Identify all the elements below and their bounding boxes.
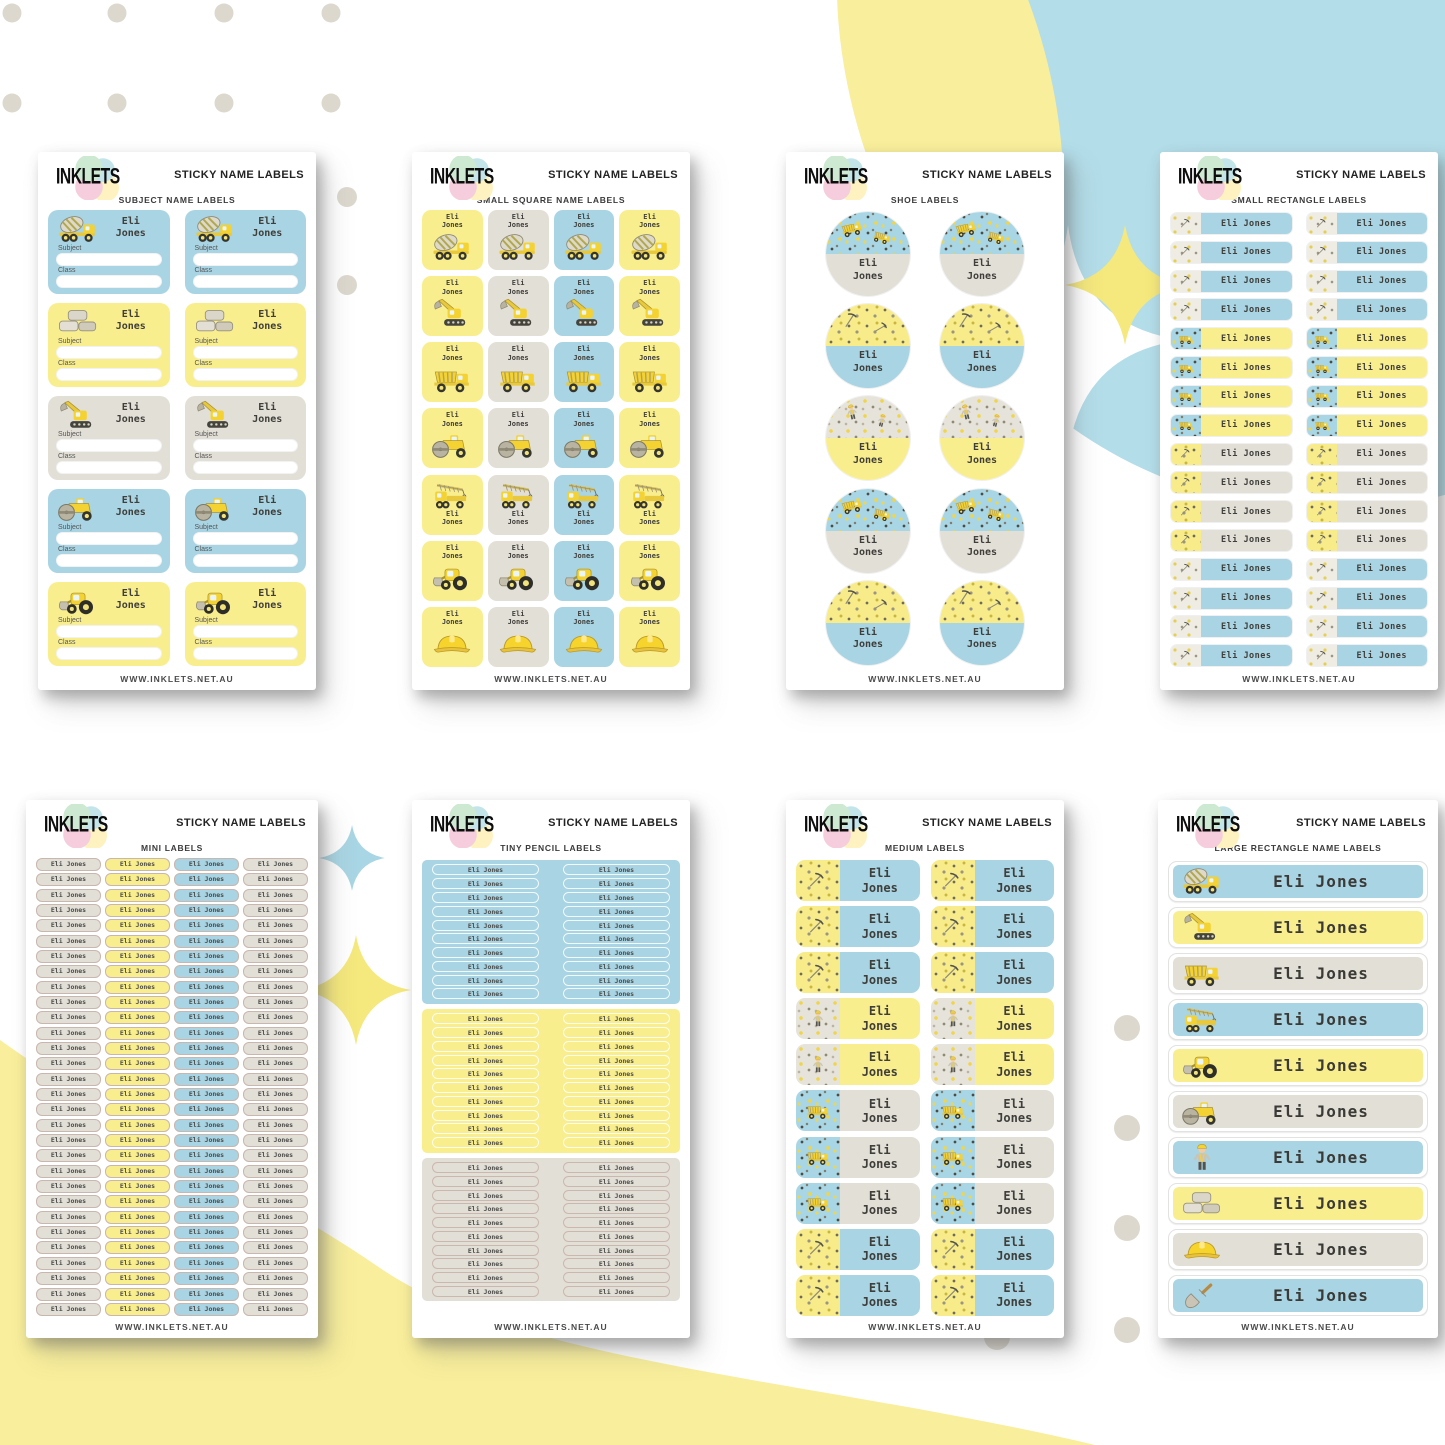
front-loader-icon bbox=[496, 562, 540, 592]
pattern-half bbox=[940, 396, 1024, 438]
brand-logo: INKLETS bbox=[804, 812, 868, 838]
subject-name-label: EliJones Subject Class bbox=[185, 303, 307, 387]
mini-label: Eli Jones bbox=[36, 1149, 101, 1162]
small-rectangle-label: Eli Jones bbox=[1170, 471, 1293, 494]
mini-label: Eli Jones bbox=[105, 1288, 170, 1301]
mini-label: Eli Jones bbox=[105, 1011, 170, 1024]
medium-label: EliJones bbox=[931, 860, 1055, 901]
large-rectangle-label: Eli Jones bbox=[1168, 907, 1428, 948]
mini-label: Eli Jones bbox=[36, 858, 101, 871]
square-name-label: EliJones bbox=[422, 607, 483, 667]
mini-label: Eli Jones bbox=[36, 1119, 101, 1132]
pattern-swatch bbox=[796, 1090, 840, 1131]
small-rectangle-label: Eli Jones bbox=[1170, 356, 1293, 379]
label-name: EliJones bbox=[237, 493, 299, 523]
square-name-label: EliJones bbox=[554, 607, 615, 667]
mini-label: Eli Jones bbox=[105, 1195, 170, 1208]
medium-label: EliJones bbox=[931, 1044, 1055, 1085]
worker-icon bbox=[952, 402, 979, 424]
label-name: EliJones bbox=[573, 213, 594, 230]
mini-label: Eli Jones bbox=[105, 1057, 170, 1070]
class-field-label: Class bbox=[195, 546, 299, 553]
large-rectangle-label: Eli Jones bbox=[1168, 1091, 1428, 1132]
sheet-footer-url: WWW.INKLETS.NET.AU bbox=[1158, 1322, 1438, 1332]
label-name: EliJones bbox=[975, 998, 1055, 1039]
worker-icon bbox=[985, 412, 1008, 431]
worker-icon bbox=[1181, 1143, 1223, 1173]
subject-input-box bbox=[56, 346, 162, 359]
medium-label: EliJones bbox=[796, 860, 920, 901]
mini-label: Eli Jones bbox=[243, 858, 308, 871]
pattern-swatch bbox=[1171, 472, 1201, 493]
excavator-icon bbox=[56, 400, 100, 430]
front-loader-icon bbox=[628, 562, 672, 592]
label-name: EliJones bbox=[840, 1229, 920, 1270]
square-name-label: EliJones bbox=[422, 541, 483, 601]
square-name-label: EliJones bbox=[554, 276, 615, 336]
medium-label: EliJones bbox=[796, 1229, 920, 1270]
label-name: EliJones bbox=[840, 952, 920, 993]
mini-label: Eli Jones bbox=[36, 1057, 101, 1070]
dump-truck-icon bbox=[1178, 362, 1194, 374]
large-rectangle-label: Eli Jones bbox=[1168, 1045, 1428, 1086]
dump-truck-icon bbox=[838, 494, 865, 516]
square-name-label: EliJones bbox=[554, 541, 615, 601]
class-input-box bbox=[193, 368, 299, 381]
mini-label: Eli Jones bbox=[36, 1195, 101, 1208]
labels-grid: Eli JonesEli JonesEli JonesEli JonesEli … bbox=[36, 858, 308, 1316]
label-name: EliJones bbox=[967, 535, 997, 560]
label-name: EliJones bbox=[639, 279, 660, 296]
pencil-label: Eli Jones bbox=[563, 1096, 670, 1107]
pattern-swatch bbox=[1171, 357, 1201, 378]
medium-label: EliJones bbox=[796, 1137, 920, 1178]
label-name: EliJones bbox=[442, 213, 463, 230]
brand-logo: INKLETS bbox=[1178, 164, 1242, 190]
class-field-label: Class bbox=[195, 360, 299, 367]
square-name-label: EliJones bbox=[554, 408, 615, 468]
sheet-footer-url: WWW.INKLETS.NET.AU bbox=[26, 1322, 318, 1332]
mini-label: Eli Jones bbox=[105, 1073, 170, 1086]
medium-label: EliJones bbox=[931, 1183, 1055, 1224]
small-rectangle-label: Eli Jones bbox=[1306, 298, 1429, 321]
pencil-label-block: Eli JonesEli JonesEli JonesEli JonesEli … bbox=[422, 1158, 680, 1302]
pattern-swatch bbox=[1171, 271, 1201, 292]
label-name: EliJones bbox=[508, 411, 529, 428]
square-name-label: EliJones bbox=[619, 408, 680, 468]
label-name: EliJones bbox=[639, 510, 660, 527]
tools-icon bbox=[1314, 650, 1330, 662]
mini-label: Eli Jones bbox=[174, 1073, 239, 1086]
label-body: Eli Jones bbox=[1173, 1095, 1423, 1128]
pattern-swatch bbox=[1171, 645, 1201, 666]
pattern-swatch bbox=[931, 1137, 975, 1178]
tools-icon bbox=[940, 918, 966, 936]
subject-field-label: Subject bbox=[58, 431, 162, 438]
sheet-large-rectangle-name-labels: INKLETS STICKY NAME LABELS LARGE RECTANG… bbox=[1158, 800, 1438, 1338]
tools-icon bbox=[805, 964, 831, 982]
square-name-label: EliJones bbox=[488, 408, 549, 468]
mini-label: Eli Jones bbox=[36, 1027, 101, 1040]
label-name: Eli Jones bbox=[1201, 357, 1292, 378]
label-name: Eli Jones bbox=[1201, 386, 1292, 407]
tools-icon bbox=[1178, 275, 1194, 287]
sheet-title: STICKY NAME LABELS bbox=[548, 817, 678, 829]
shoe-label: EliJones bbox=[940, 212, 1024, 296]
small-rectangle-label: Eli Jones bbox=[1170, 587, 1293, 610]
mini-label: Eli Jones bbox=[36, 1272, 101, 1285]
label-name: EliJones bbox=[975, 1275, 1055, 1316]
mini-label: Eli Jones bbox=[174, 1134, 239, 1147]
dump-truck-icon bbox=[1314, 333, 1330, 345]
cement-mixer-icon bbox=[1181, 866, 1223, 896]
front-loader-icon bbox=[56, 586, 100, 616]
name-half: EliJones bbox=[940, 346, 1024, 388]
label-name: Eli Jones bbox=[1201, 213, 1292, 234]
mini-label: Eli Jones bbox=[243, 1195, 308, 1208]
pattern-swatch bbox=[1171, 588, 1201, 609]
mini-label: Eli Jones bbox=[105, 1303, 170, 1316]
sheet-header: INKLETS STICKY NAME LABELS bbox=[1170, 160, 1428, 194]
mini-label: Eli Jones bbox=[243, 1211, 308, 1224]
label-name: EliJones bbox=[573, 345, 594, 362]
sheet-header: INKLETS STICKY NAME LABELS bbox=[796, 808, 1054, 842]
brand-logo: INKLETS bbox=[1176, 812, 1240, 838]
mini-label: Eli Jones bbox=[36, 1257, 101, 1270]
mini-label: Eli Jones bbox=[36, 935, 101, 948]
mini-label: Eli Jones bbox=[36, 1011, 101, 1024]
label-name: EliJones bbox=[840, 860, 920, 901]
label-body: Eli Jones bbox=[1173, 1049, 1423, 1082]
pattern-swatch bbox=[931, 1229, 975, 1270]
mini-label: Eli Jones bbox=[243, 1088, 308, 1101]
sheet-mini-labels: INKLETS STICKY NAME LABELS MINI LABELS E… bbox=[26, 800, 318, 1338]
label-name: EliJones bbox=[237, 307, 299, 337]
mini-label: Eli Jones bbox=[36, 1088, 101, 1101]
label-name: EliJones bbox=[853, 627, 883, 652]
label-name: EliJones bbox=[975, 1229, 1055, 1270]
label-name: EliJones bbox=[442, 279, 463, 296]
label-name: EliJones bbox=[442, 510, 463, 527]
label-name: Eli Jones bbox=[1227, 1240, 1415, 1259]
small-rectangle-label: Eli Jones bbox=[1170, 385, 1293, 408]
shoe-label: EliJones bbox=[940, 489, 1024, 573]
shoe-label: EliJones bbox=[940, 581, 1024, 665]
cement-mixer-icon bbox=[496, 232, 540, 262]
mini-label: Eli Jones bbox=[243, 1027, 308, 1040]
tools-icon bbox=[1314, 448, 1330, 460]
subject-input-box bbox=[56, 439, 162, 452]
pencil-label: Eli Jones bbox=[563, 1203, 670, 1214]
large-rectangle-label: Eli Jones bbox=[1168, 953, 1428, 994]
sheet-footer-url: WWW.INKLETS.NET.AU bbox=[786, 1322, 1064, 1332]
label-name: EliJones bbox=[840, 1044, 920, 1085]
excavator-icon bbox=[193, 400, 237, 430]
medium-label: EliJones bbox=[796, 998, 920, 1039]
sheet-footer-url: WWW.INKLETS.NET.AU bbox=[38, 674, 316, 684]
label-name: EliJones bbox=[840, 1137, 920, 1178]
square-name-label: EliJones bbox=[488, 475, 549, 535]
label-name: Eli Jones bbox=[1227, 872, 1415, 891]
pattern-swatch bbox=[1171, 559, 1201, 580]
subject-input-box bbox=[193, 253, 299, 266]
label-name: EliJones bbox=[508, 279, 529, 296]
label-header: EliJones bbox=[56, 307, 162, 337]
label-name: EliJones bbox=[442, 411, 463, 428]
label-header: EliJones bbox=[56, 400, 162, 430]
dump-truck-icon bbox=[1314, 390, 1330, 402]
subject-input-box bbox=[193, 532, 299, 545]
label-name: EliJones bbox=[975, 952, 1055, 993]
mini-label: Eli Jones bbox=[36, 1165, 101, 1178]
mini-label: Eli Jones bbox=[174, 1057, 239, 1070]
mini-label: Eli Jones bbox=[174, 1119, 239, 1132]
square-name-label: EliJones bbox=[619, 607, 680, 667]
square-name-label: EliJones bbox=[488, 210, 549, 270]
mini-label: Eli Jones bbox=[174, 1027, 239, 1040]
mini-label: Eli Jones bbox=[174, 1011, 239, 1024]
road-roller-icon bbox=[1181, 1097, 1223, 1127]
tools-icon bbox=[1314, 218, 1330, 230]
pencil-label: Eli Jones bbox=[563, 988, 670, 999]
sheet-title: STICKY NAME LABELS bbox=[174, 169, 304, 181]
label-name: EliJones bbox=[853, 258, 883, 283]
small-rectangle-label: Eli Jones bbox=[1170, 529, 1293, 552]
dump-truck-icon bbox=[952, 218, 979, 240]
pattern-swatch bbox=[1171, 242, 1201, 263]
pencil-label: Eli Jones bbox=[432, 1082, 539, 1093]
mini-label: Eli Jones bbox=[36, 1180, 101, 1193]
sheet-header: INKLETS STICKY NAME LABELS bbox=[1168, 808, 1428, 842]
mini-label: Eli Jones bbox=[243, 1226, 308, 1239]
crane-truck-icon bbox=[628, 480, 672, 510]
pencil-label: Eli Jones bbox=[432, 1190, 539, 1201]
label-name: EliJones bbox=[508, 510, 529, 527]
mini-label: Eli Jones bbox=[243, 919, 308, 932]
label-name: EliJones bbox=[573, 411, 594, 428]
shoe-label: EliJones bbox=[826, 489, 910, 573]
mini-label: Eli Jones bbox=[174, 950, 239, 963]
worker-icon bbox=[838, 402, 865, 424]
subject-field-label: Subject bbox=[58, 524, 162, 531]
subject-name-label: EliJones Subject Class bbox=[48, 303, 170, 387]
dump-truck-icon bbox=[952, 494, 979, 516]
subject-field-label: Subject bbox=[58, 338, 162, 345]
tools-icon bbox=[1178, 246, 1194, 258]
mini-label: Eli Jones bbox=[174, 889, 239, 902]
subject-field-label: Subject bbox=[195, 245, 299, 252]
pencil-label: Eli Jones bbox=[563, 1110, 670, 1121]
mini-label: Eli Jones bbox=[243, 1257, 308, 1270]
label-name: Eli Jones bbox=[1227, 1010, 1415, 1029]
square-name-label: EliJones bbox=[554, 475, 615, 535]
dump-truck-icon bbox=[1178, 419, 1194, 431]
medium-label: EliJones bbox=[796, 1275, 920, 1316]
pattern-swatch bbox=[796, 1275, 840, 1316]
pencil-label: Eli Jones bbox=[432, 1013, 539, 1024]
mini-label: Eli Jones bbox=[243, 1042, 308, 1055]
label-name: EliJones bbox=[639, 411, 660, 428]
label-name: EliJones bbox=[975, 1044, 1055, 1085]
excavator-icon bbox=[430, 298, 474, 328]
medium-label: EliJones bbox=[796, 952, 920, 993]
pattern-swatch bbox=[931, 952, 975, 993]
tools-icon bbox=[1178, 477, 1194, 489]
name-half: EliJones bbox=[940, 438, 1024, 480]
dump-truck-icon bbox=[985, 228, 1008, 247]
pencil-label: Eli Jones bbox=[563, 975, 670, 986]
mini-label: Eli Jones bbox=[243, 996, 308, 1009]
tools-icon bbox=[1314, 534, 1330, 546]
pattern-half bbox=[826, 396, 910, 438]
hard-hat-icon bbox=[430, 629, 474, 659]
pattern-half bbox=[940, 212, 1024, 254]
pencil-label: Eli Jones bbox=[563, 1013, 670, 1024]
mini-label: Eli Jones bbox=[174, 1042, 239, 1055]
excavator-icon bbox=[1181, 912, 1223, 942]
label-name: EliJones bbox=[967, 350, 997, 375]
small-rectangle-label: Eli Jones bbox=[1170, 615, 1293, 638]
square-name-label: EliJones bbox=[488, 276, 549, 336]
hard-hat-icon bbox=[562, 629, 606, 659]
tools-icon bbox=[838, 310, 865, 332]
label-name: Eli Jones bbox=[1201, 559, 1292, 580]
dump-truck-icon bbox=[1178, 390, 1194, 402]
pattern-half bbox=[826, 212, 910, 254]
medium-label: EliJones bbox=[931, 952, 1055, 993]
pencil-label: Eli Jones bbox=[432, 906, 539, 917]
pencil-label: Eli Jones bbox=[432, 1068, 539, 1079]
label-name: Eli Jones bbox=[1337, 213, 1428, 234]
name-half: EliJones bbox=[940, 623, 1024, 665]
label-name: Eli Jones bbox=[1201, 444, 1292, 465]
small-rectangle-label: Eli Jones bbox=[1306, 500, 1429, 523]
shoe-label: EliJones bbox=[940, 304, 1024, 388]
label-name: EliJones bbox=[975, 1183, 1055, 1224]
square-name-label: EliJones bbox=[422, 408, 483, 468]
pencil-label: Eli Jones bbox=[432, 947, 539, 958]
mini-label: Eli Jones bbox=[36, 1103, 101, 1116]
class-field-label: Class bbox=[58, 360, 162, 367]
mini-label: Eli Jones bbox=[36, 1073, 101, 1086]
label-header: EliJones bbox=[56, 493, 162, 523]
pencil-label: Eli Jones bbox=[432, 1231, 539, 1242]
pencil-label: Eli Jones bbox=[563, 961, 670, 972]
label-name: EliJones bbox=[967, 627, 997, 652]
label-name: Eli Jones bbox=[1227, 964, 1415, 983]
label-name: Eli Jones bbox=[1337, 616, 1428, 637]
label-name: Eli Jones bbox=[1227, 1102, 1415, 1121]
pencil-label: Eli Jones bbox=[432, 1272, 539, 1283]
large-rectangle-label: Eli Jones bbox=[1168, 1275, 1428, 1316]
small-rectangle-label: Eli Jones bbox=[1306, 414, 1429, 437]
mini-label: Eli Jones bbox=[243, 950, 308, 963]
dump-truck-icon bbox=[940, 1194, 966, 1212]
pattern-swatch bbox=[1171, 213, 1201, 234]
mini-label: Eli Jones bbox=[174, 1088, 239, 1101]
small-rectangle-label: Eli Jones bbox=[1170, 298, 1293, 321]
mini-label: Eli Jones bbox=[105, 1272, 170, 1285]
large-rectangle-label: Eli Jones bbox=[1168, 1183, 1428, 1224]
tools-icon bbox=[1314, 592, 1330, 604]
blue-sparkle-icon bbox=[319, 825, 385, 891]
square-name-label: EliJones bbox=[619, 541, 680, 601]
bricks-icon bbox=[1181, 1189, 1223, 1219]
small-rectangle-label: Eli Jones bbox=[1170, 241, 1293, 264]
label-name: EliJones bbox=[508, 213, 529, 230]
brand-logo: INKLETS bbox=[804, 164, 868, 190]
label-body: Eli Jones bbox=[1173, 1233, 1423, 1266]
pencil-label: Eli Jones bbox=[563, 1162, 670, 1173]
pencil-label: Eli Jones bbox=[563, 864, 670, 875]
tools-icon bbox=[871, 596, 894, 615]
tools-icon bbox=[805, 918, 831, 936]
crane-truck-icon bbox=[496, 480, 540, 510]
tools-icon bbox=[1314, 246, 1330, 258]
mini-label: Eli Jones bbox=[174, 1165, 239, 1178]
name-half: EliJones bbox=[826, 346, 910, 388]
mini-label: Eli Jones bbox=[36, 1134, 101, 1147]
tools-icon bbox=[1178, 650, 1194, 662]
mini-label: Eli Jones bbox=[174, 858, 239, 871]
label-name: Eli Jones bbox=[1337, 357, 1428, 378]
mini-label: Eli Jones bbox=[105, 1134, 170, 1147]
small-rectangle-label: Eli Jones bbox=[1170, 270, 1293, 293]
small-rectangle-label: Eli Jones bbox=[1306, 385, 1429, 408]
road-roller-icon bbox=[496, 430, 540, 460]
mini-label: Eli Jones bbox=[105, 1241, 170, 1254]
label-name: Eli Jones bbox=[1337, 271, 1428, 292]
label-name: Eli Jones bbox=[1227, 1148, 1415, 1167]
pencil-label: Eli Jones bbox=[563, 1272, 670, 1283]
dump-truck-icon bbox=[1178, 333, 1194, 345]
small-rectangle-label: Eli Jones bbox=[1170, 212, 1293, 235]
mini-label: Eli Jones bbox=[36, 1211, 101, 1224]
pencil-label: Eli Jones bbox=[432, 988, 539, 999]
mini-label: Eli Jones bbox=[243, 981, 308, 994]
name-half: EliJones bbox=[826, 623, 910, 665]
dump-truck-icon bbox=[496, 364, 540, 394]
mini-label: Eli Jones bbox=[36, 950, 101, 963]
small-rectangle-label: Eli Jones bbox=[1306, 443, 1429, 466]
class-input-box bbox=[193, 647, 299, 660]
mini-label: Eli Jones bbox=[174, 1272, 239, 1285]
label-name: EliJones bbox=[100, 586, 162, 616]
pencil-label: Eli Jones bbox=[563, 1082, 670, 1093]
pattern-swatch bbox=[931, 860, 975, 901]
pattern-swatch bbox=[1307, 299, 1337, 320]
label-name: EliJones bbox=[573, 510, 594, 527]
sheet-small-square-name-labels: INKLETS STICKY NAME LABELS SMALL SQUARE … bbox=[412, 152, 690, 690]
label-name: Eli Jones bbox=[1227, 1056, 1415, 1075]
mini-label: Eli Jones bbox=[243, 1288, 308, 1301]
label-name: EliJones bbox=[237, 400, 299, 430]
class-field-label: Class bbox=[58, 546, 162, 553]
shoe-label: EliJones bbox=[826, 396, 910, 480]
square-name-label: EliJones bbox=[554, 210, 615, 270]
class-input-box bbox=[56, 368, 162, 381]
small-rectangle-label: Eli Jones bbox=[1306, 356, 1429, 379]
crane-truck-icon bbox=[562, 480, 606, 510]
class-input-box bbox=[56, 554, 162, 567]
sheet-title: STICKY NAME LABELS bbox=[1296, 817, 1426, 829]
label-name: Eli Jones bbox=[1201, 472, 1292, 493]
pencil-label: Eli Jones bbox=[432, 1110, 539, 1121]
pencil-label: Eli Jones bbox=[563, 1137, 670, 1148]
label-name: EliJones bbox=[100, 307, 162, 337]
pattern-half bbox=[940, 489, 1024, 531]
worker-icon bbox=[805, 1010, 831, 1028]
